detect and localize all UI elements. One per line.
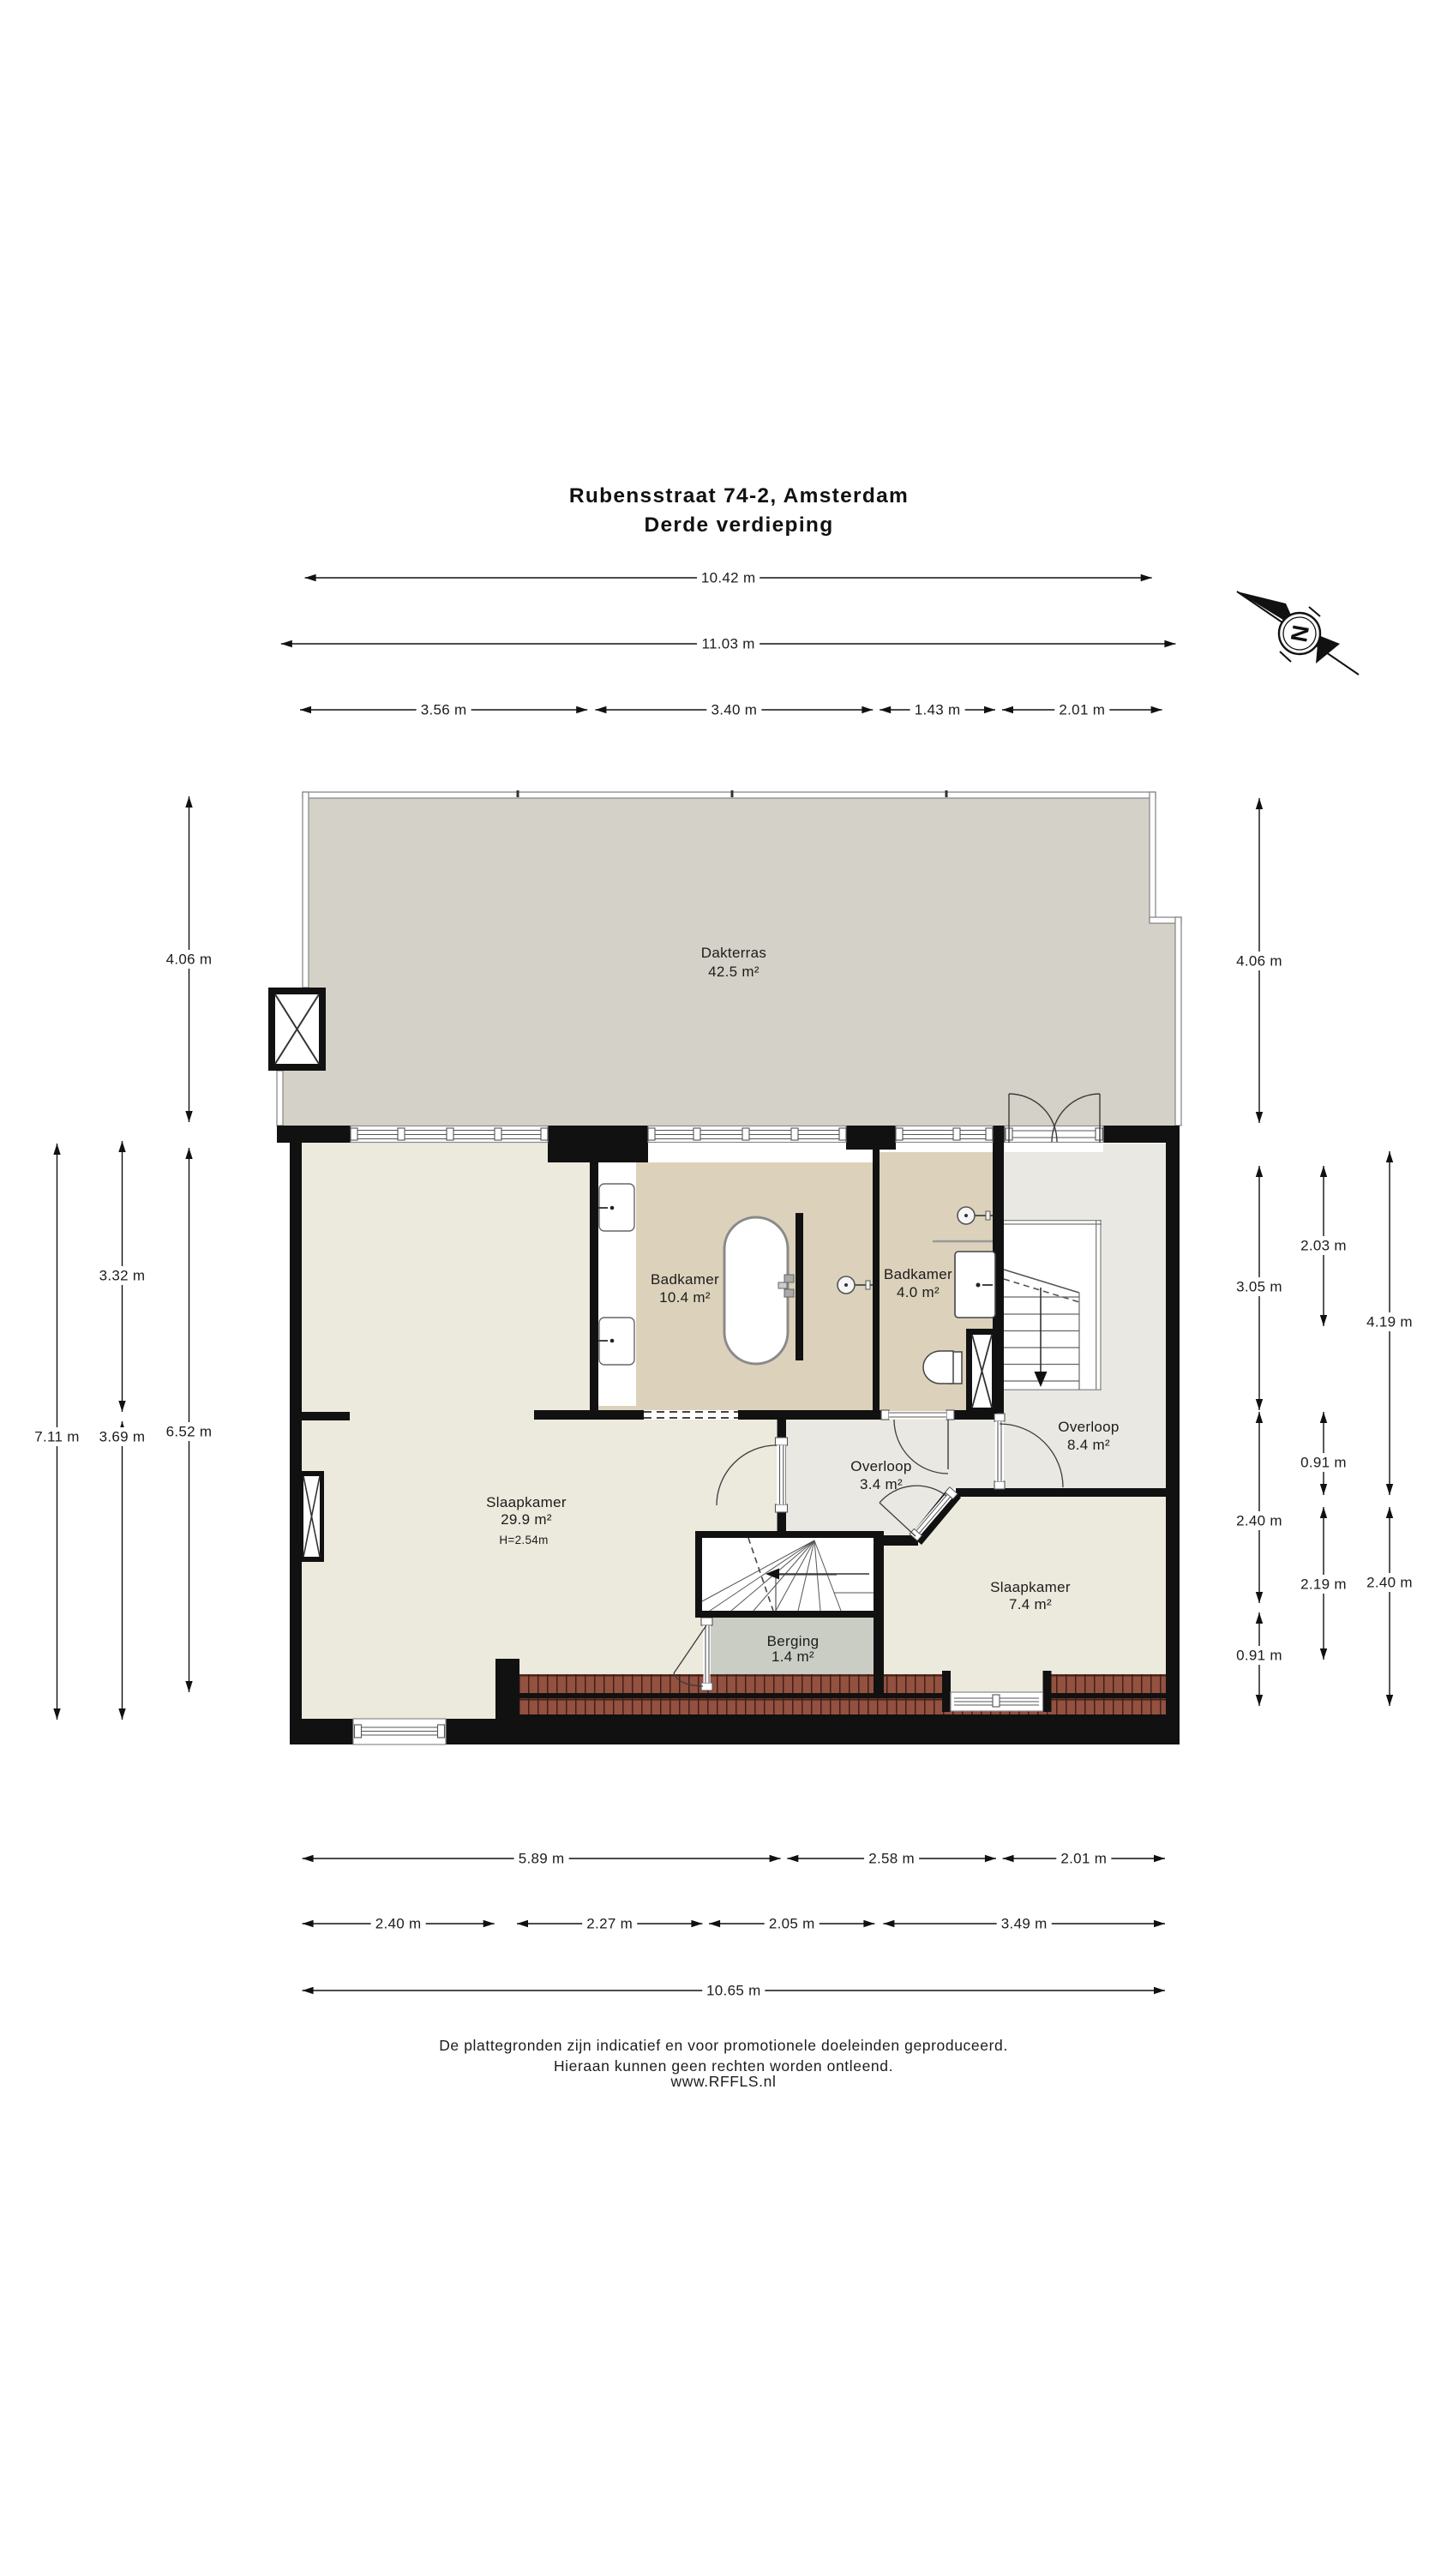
svg-text:7.11 m: 7.11 m bbox=[34, 1429, 80, 1445]
svg-text:3.4 m²: 3.4 m² bbox=[860, 1476, 903, 1492]
svg-text:3.05 m: 3.05 m bbox=[1236, 1279, 1282, 1295]
svg-text:Overloop: Overloop bbox=[1058, 1419, 1119, 1435]
svg-text:Slaapkamer: Slaapkamer bbox=[486, 1494, 567, 1510]
svg-text:3.40 m: 3.40 m bbox=[711, 702, 757, 718]
svg-text:7.4 m²: 7.4 m² bbox=[1009, 1596, 1052, 1612]
svg-text:Berging: Berging bbox=[767, 1633, 820, 1649]
svg-text:2.40 m: 2.40 m bbox=[1366, 1575, 1413, 1591]
svg-text:2.19 m: 2.19 m bbox=[1300, 1576, 1347, 1593]
svg-text:3.56 m: 3.56 m bbox=[421, 702, 467, 718]
svg-text:4.19 m: 4.19 m bbox=[1366, 1314, 1413, 1330]
svg-text:Rubensstraat 74-2, Amsterdam: Rubensstraat 74-2, Amsterdam bbox=[569, 484, 909, 507]
svg-text:H=2.54m: H=2.54m bbox=[499, 1534, 548, 1546]
svg-text:2.58 m: 2.58 m bbox=[868, 1851, 915, 1867]
svg-text:2.05 m: 2.05 m bbox=[769, 1916, 815, 1932]
svg-text:2.27 m: 2.27 m bbox=[586, 1916, 633, 1932]
svg-text:10.4 m²: 10.4 m² bbox=[659, 1289, 711, 1306]
svg-text:Hieraan kunnen geen rechten wo: Hieraan kunnen geen rechten worden ontle… bbox=[554, 2057, 893, 2075]
svg-text:42.5 m²: 42.5 m² bbox=[708, 964, 760, 980]
svg-text:4.06 m: 4.06 m bbox=[1236, 953, 1282, 970]
svg-text:5.89 m: 5.89 m bbox=[519, 1851, 565, 1867]
svg-text:6.52 m: 6.52 m bbox=[166, 1424, 213, 1440]
svg-text:3.69 m: 3.69 m bbox=[99, 1429, 146, 1445]
svg-text:Overloop: Overloop bbox=[850, 1458, 911, 1474]
svg-text:Slaapkamer: Slaapkamer bbox=[990, 1579, 1071, 1595]
svg-text:Badkamer: Badkamer bbox=[884, 1266, 952, 1282]
svg-text:4.06 m: 4.06 m bbox=[166, 952, 213, 968]
svg-text:Badkamer: Badkamer bbox=[651, 1271, 719, 1288]
svg-text:0.91 m: 0.91 m bbox=[1300, 1455, 1347, 1471]
svg-text:29.9 m²: 29.9 m² bbox=[501, 1511, 552, 1528]
svg-text:De plattegronden zijn indicati: De plattegronden zijn indicatief en voor… bbox=[439, 2037, 1008, 2054]
svg-text:2.40 m: 2.40 m bbox=[1236, 1513, 1282, 1529]
svg-text:3.32 m: 3.32 m bbox=[99, 1268, 146, 1284]
svg-text:2.03 m: 2.03 m bbox=[1300, 1238, 1347, 1254]
svg-text:2.01 m: 2.01 m bbox=[1059, 702, 1105, 718]
svg-text:Derde verdieping: Derde verdieping bbox=[645, 513, 834, 537]
svg-text:2.01 m: 2.01 m bbox=[1060, 1851, 1107, 1867]
svg-text:0.91 m: 0.91 m bbox=[1236, 1648, 1282, 1664]
svg-text:1.43 m: 1.43 m bbox=[915, 702, 961, 718]
svg-text:1.4 m²: 1.4 m² bbox=[772, 1648, 814, 1665]
svg-text:4.0 m²: 4.0 m² bbox=[897, 1284, 940, 1300]
svg-text:8.4 m²: 8.4 m² bbox=[1067, 1437, 1110, 1453]
svg-text:10.42 m: 10.42 m bbox=[701, 570, 756, 586]
svg-text:10.65 m: 10.65 m bbox=[706, 1983, 761, 1999]
svg-text:3.49 m: 3.49 m bbox=[1001, 1916, 1048, 1932]
svg-text:11.03 m: 11.03 m bbox=[701, 636, 754, 652]
svg-text:Dakterras: Dakterras bbox=[701, 945, 766, 961]
svg-text:2.40 m: 2.40 m bbox=[375, 1916, 422, 1932]
svg-text:www.RFFLS.nl: www.RFFLS.nl bbox=[670, 2073, 777, 2090]
